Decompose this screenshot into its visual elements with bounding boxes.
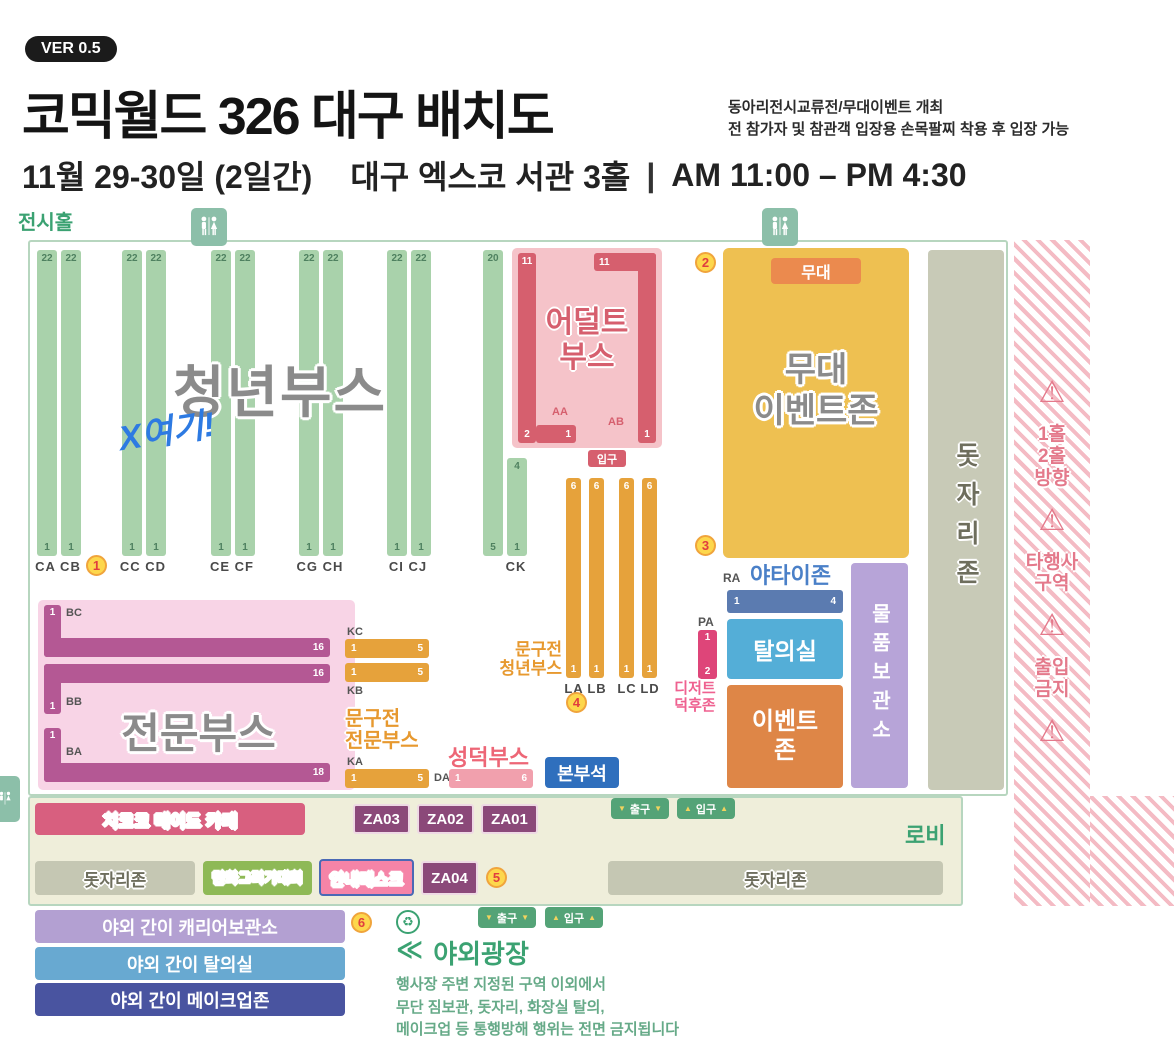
za03-box: ZA03 bbox=[353, 804, 410, 834]
bar-start-count: 1 bbox=[734, 596, 740, 607]
bar-end-count: 6 bbox=[521, 773, 527, 784]
col-label-ld: LD bbox=[636, 681, 664, 696]
yatai-zone-title: 야타이존 bbox=[750, 558, 831, 590]
down-arrow-icon: ▼ bbox=[618, 804, 626, 813]
kb-bar: 15 bbox=[345, 663, 429, 682]
hall-dir-line2: 2홀 bbox=[1035, 446, 1070, 468]
marker-3: 3 bbox=[695, 535, 716, 556]
bar-bottom-count: 5 bbox=[490, 542, 496, 553]
pro-booth-zone: 1 BC 16 16 1 BB 1 BA 18 전문부스 bbox=[38, 600, 355, 790]
col-label-ce-cf: CE CF bbox=[207, 559, 257, 574]
pro-booth-title: 전문부스 bbox=[96, 700, 301, 761]
rule-line1: 행사장 주변 지정된 구역 이외에서 bbox=[396, 974, 679, 997]
adult-booth-title: 어덜트 부스 bbox=[512, 306, 662, 375]
youth-bar-lb: 61 bbox=[589, 478, 604, 678]
bar-top-count: 22 bbox=[391, 253, 402, 264]
up-arrow-icon: ▲ bbox=[720, 804, 728, 813]
youth-bar-ck-long: 205 bbox=[483, 250, 503, 556]
pro-bar-bb-h: 16 bbox=[44, 664, 330, 683]
schedule-line: 11월 29-30일 (2일간) 대구 엑스코 서관 3홀 | AM 11:00… bbox=[22, 152, 967, 198]
marker-6: 6 bbox=[351, 912, 372, 933]
event-zone: 이벤트 존 bbox=[727, 685, 843, 788]
youth-bar-cc: 221 bbox=[122, 250, 142, 556]
adult-row-ab-label: AB bbox=[608, 416, 624, 428]
bar-count: 1 bbox=[50, 701, 56, 712]
stationery-pro-line2: 전문부스 bbox=[345, 730, 419, 752]
bar-top-count: 22 bbox=[239, 253, 250, 264]
info-desk-box: 안내데스크 bbox=[319, 859, 414, 896]
comic-world-layout-poster: VER 0.5 코믹월드 326 대구 배치도 동아리전시교류전/무대이벤트 개… bbox=[0, 0, 1174, 1040]
col-label-cg-ch: CG CH bbox=[295, 559, 345, 574]
version-badge: VER 0.5 bbox=[25, 36, 117, 62]
seongdeok-booth-label: 성덕부스 bbox=[448, 740, 529, 772]
bar-bottom-count: 1 bbox=[330, 542, 336, 553]
stationery-pro-line1: 문구전 bbox=[345, 708, 419, 730]
entrance-button-lobby: ▲입구▲ bbox=[677, 798, 735, 819]
youth-bar-ck-short: 41 bbox=[507, 458, 527, 556]
hall-dir-line3: 방향 bbox=[1035, 468, 1070, 490]
marker-2: 2 bbox=[695, 252, 716, 273]
maid-cafe-box: 치코코 메이드 카페 bbox=[35, 803, 305, 835]
other-event-line2: 구역 bbox=[1026, 573, 1078, 595]
dessert-fan-zone-label: 디저트 덕후존 bbox=[664, 681, 726, 715]
restricted-zone-strip: ⚠ 1홀 2홀 방향 ⚠ 타행사 구역 ⚠ 출입 금지 ⚠ bbox=[1014, 240, 1090, 906]
hall-dir-line1: 1홀 bbox=[1035, 424, 1070, 446]
bar-top-count: 4 bbox=[514, 461, 520, 472]
bar-bottom-count: 1 bbox=[129, 542, 135, 553]
stationery-youth-line1: 문구전 bbox=[498, 640, 562, 659]
bar-bottom-count: 1 bbox=[644, 429, 650, 440]
stationery-pro-label: 문구전 전문부스 bbox=[345, 708, 419, 753]
other-event-line1: 타행사 bbox=[1026, 552, 1078, 574]
bar-top-count: 11 bbox=[522, 256, 533, 267]
bar-top-count: 1 bbox=[705, 632, 711, 643]
pro-bar-ba-h: 18 bbox=[44, 763, 330, 782]
adult-row-aa-label: AA bbox=[552, 406, 568, 418]
bar-bottom-count: 1 bbox=[306, 542, 312, 553]
event-zone-line1: 이벤트 bbox=[752, 708, 818, 736]
outdoor-changing-room-box: 야외 간이 탈의실 bbox=[35, 947, 345, 980]
bar-end-count: 16 bbox=[313, 642, 324, 653]
stage-event-zone: 무대 무대 이벤트존 bbox=[723, 248, 909, 558]
bar-top-count: 22 bbox=[150, 253, 161, 264]
mat-zone-lobby-left: 돗자리존 bbox=[35, 861, 195, 895]
pro-row-bb-label: BB bbox=[66, 696, 82, 708]
event-date: 11월 29-30일 (2일간) bbox=[22, 152, 312, 198]
rule-line3: 메이크업 등 통행방해 행위는 전면 금지됩니다 bbox=[396, 1019, 679, 1040]
storage-zone: 물품보관소 bbox=[851, 563, 908, 788]
bar-bottom-count: 1 bbox=[153, 542, 159, 553]
dessert-line1: 디저트 bbox=[664, 681, 726, 698]
bar-top-count: 6 bbox=[624, 481, 630, 492]
youth-bar-ld: 61 bbox=[642, 478, 657, 678]
ka-label: KA bbox=[347, 756, 363, 768]
down-arrow-icon: ▼ bbox=[654, 804, 662, 813]
bar-start-count: 1 bbox=[351, 667, 357, 678]
page-title: 코믹월드 326 대구 배치도 bbox=[22, 74, 553, 149]
outdoor-rules-text: 행사장 주변 지정된 구역 이외에서 무단 짐보관, 돗자리, 화장실 탈의, … bbox=[396, 974, 679, 1040]
bar-bottom-count: 1 bbox=[647, 664, 653, 675]
bar-bottom-count: 2 bbox=[705, 666, 711, 677]
down-arrow-icon: ▼ bbox=[521, 913, 529, 922]
restroom-figures-icon bbox=[196, 214, 222, 240]
warning-icon-2: ⚠ bbox=[1039, 506, 1066, 536]
da-bar: 16 bbox=[449, 769, 533, 788]
changing-room-zone: 탈의실 bbox=[727, 619, 843, 679]
adult-title-line2: 부스 bbox=[512, 341, 662, 376]
bar-top-count: 6 bbox=[571, 481, 577, 492]
recycle-icon: ♻ bbox=[396, 910, 420, 934]
bar-start-count: 1 bbox=[455, 773, 461, 784]
outdoor-makeup-zone-box: 야외 간이 메이크업존 bbox=[35, 983, 345, 1016]
col-label-ck: CK bbox=[502, 559, 530, 574]
yatai-ra-label: RA bbox=[723, 571, 740, 585]
recycle-glyph: ♻ bbox=[402, 914, 414, 930]
bar-bottom-count: 2 bbox=[524, 429, 530, 440]
yatai-pa-bar: 12 bbox=[698, 630, 717, 679]
pro-row-bc-label: BC bbox=[66, 607, 82, 619]
drawing-contest-box: 만화그리기대회 bbox=[203, 861, 312, 895]
outdoor-plaza-label: 야외광장 bbox=[433, 934, 529, 971]
restroom-figures-icon bbox=[767, 214, 793, 240]
stage-badge: 무대 bbox=[771, 258, 861, 284]
bar-start-count: 11 bbox=[599, 257, 610, 268]
restroom-figures-icon bbox=[0, 788, 14, 810]
event-note-line1: 동아리전시교류전/무대이벤트 개최 bbox=[728, 97, 1069, 119]
bar-end-count: 5 bbox=[417, 667, 423, 678]
outdoor-carrier-storage-box: 야외 간이 캐리어보관소 bbox=[35, 910, 345, 943]
pro-row-ba-label: BA bbox=[66, 746, 82, 758]
bar-top-count: 22 bbox=[126, 253, 137, 264]
exit-label: 출구 bbox=[497, 910, 517, 926]
za04-box: ZA04 bbox=[421, 861, 478, 895]
bar-top-count: 20 bbox=[487, 253, 498, 264]
bar-bottom-count: 1 bbox=[68, 542, 74, 553]
bar-top-count: 22 bbox=[303, 253, 314, 264]
bar-bottom-count: 1 bbox=[394, 542, 400, 553]
stage-title-line2: 이벤트존 bbox=[723, 391, 909, 432]
col-label-ci-cj: CI CJ bbox=[383, 559, 433, 574]
stage-title-line1: 무대 bbox=[723, 350, 909, 391]
youth-bar-lc: 61 bbox=[619, 478, 634, 678]
bar-top-count: 22 bbox=[65, 253, 76, 264]
col-label-cc-cd: CC CD bbox=[118, 559, 168, 574]
event-note-line2: 전 참가자 및 참관객 입장용 손목팔찌 착용 후 입장 가능 bbox=[728, 119, 1069, 141]
dessert-line2: 덕후존 bbox=[664, 698, 726, 715]
bar-end-count: 4 bbox=[830, 596, 836, 607]
outdoor-plaza-title: ≪ 야외광장 bbox=[396, 934, 529, 971]
bar-top-count: 22 bbox=[327, 253, 338, 264]
bar-bottom-count: 1 bbox=[44, 542, 50, 553]
bar-top-count: 6 bbox=[647, 481, 653, 492]
no-entry-line1: 출입 bbox=[1035, 657, 1070, 679]
exhibition-hall-label: 전시홀 bbox=[18, 206, 73, 235]
restricted-text-other-event: 타행사 구역 bbox=[1026, 552, 1078, 596]
restroom-icon-top-right bbox=[762, 208, 798, 246]
youth-bar-la: 61 bbox=[566, 478, 581, 678]
up-arrow-icon: ▲ bbox=[552, 913, 560, 922]
event-notes: 동아리전시교류전/무대이벤트 개최 전 참가자 및 참관객 입장용 손목팔찌 착… bbox=[728, 97, 1069, 141]
bar-bottom-count: 1 bbox=[514, 542, 520, 553]
kc-label: KC bbox=[347, 626, 363, 638]
bar-top-count: 6 bbox=[594, 481, 600, 492]
pro-bar-bc-h: 16 bbox=[44, 638, 330, 657]
exit-button-outdoor: ▼출구▼ bbox=[478, 907, 536, 928]
restricted-zone-corner bbox=[1090, 796, 1174, 906]
mat-zone-right-strip: 돗자리존 bbox=[928, 250, 1004, 790]
marker-5: 5 bbox=[486, 867, 507, 888]
mat-zone-lobby-right: 돗자리존 bbox=[608, 861, 943, 895]
col-label-lb: LB bbox=[583, 681, 611, 696]
event-venue: 대구 엑스코 서관 3홀 bbox=[350, 152, 630, 198]
youth-bar-cb: 221 bbox=[61, 250, 81, 556]
restroom-icon-left-edge bbox=[0, 776, 20, 822]
up-arrow-icon: ▲ bbox=[588, 913, 596, 922]
restroom-icon-top-left bbox=[191, 208, 227, 246]
youth-bar-ca: 221 bbox=[37, 250, 57, 556]
adult-entrance-badge: 입구 bbox=[588, 450, 626, 467]
za02-box: ZA02 bbox=[417, 804, 474, 834]
exit-label: 출구 bbox=[630, 801, 650, 817]
bar-bottom-count: 1 bbox=[571, 664, 577, 675]
za01-box: ZA01 bbox=[481, 804, 538, 834]
restricted-text-no-entry: 출입 금지 bbox=[1035, 657, 1070, 701]
marker-1: 1 bbox=[86, 555, 107, 576]
bar-end-count: 1 bbox=[565, 429, 571, 440]
hq-seat-box: 본부석 bbox=[545, 757, 619, 788]
down-arrow-icon: ▼ bbox=[485, 913, 493, 922]
event-time: AM 11:00 – PM 4:30 bbox=[671, 157, 966, 194]
stationery-youth-label: 문구전 청년부스 bbox=[498, 640, 562, 678]
up-arrow-icon: ▲ bbox=[684, 804, 692, 813]
bar-bottom-count: 1 bbox=[418, 542, 424, 553]
yatai-pa-label: PA bbox=[698, 615, 714, 629]
bar-bottom-count: 1 bbox=[624, 664, 630, 675]
bar-end-count: 18 bbox=[313, 767, 324, 778]
bar-top-count: 22 bbox=[215, 253, 226, 264]
bar-start-count: 1 bbox=[351, 643, 357, 654]
bar-bottom-count: 1 bbox=[594, 664, 600, 675]
entrance-button-outdoor: ▲입구▲ bbox=[545, 907, 603, 928]
pro-bar-bb-v: 1 bbox=[44, 664, 61, 714]
bar-end-count: 5 bbox=[417, 773, 423, 784]
bar-bottom-count: 1 bbox=[218, 542, 224, 553]
bar-top-count: 22 bbox=[415, 253, 426, 264]
warning-icon-3: ⚠ bbox=[1039, 611, 1066, 641]
da-label: DA bbox=[434, 772, 450, 784]
kb-label: KB bbox=[347, 685, 363, 697]
double-angle-icon: ≪ bbox=[396, 934, 423, 971]
entrance-label: 입구 bbox=[696, 801, 716, 817]
stationery-youth-line2: 청년부스 bbox=[498, 659, 562, 678]
schedule-separator: | bbox=[646, 157, 655, 194]
stage-event-title: 무대 이벤트존 bbox=[723, 350, 909, 432]
adult-bar-left-foot: 1 bbox=[536, 425, 576, 443]
bar-top-count: 22 bbox=[41, 253, 52, 264]
storage-zone-label: 물품보관소 bbox=[865, 603, 894, 748]
bar-end-count: 16 bbox=[313, 668, 324, 679]
entrance-label: 입구 bbox=[564, 910, 584, 926]
warning-icon-4: ⚠ bbox=[1039, 717, 1066, 747]
exit-button-lobby: ▼출구▼ bbox=[611, 798, 669, 819]
rule-line2: 무단 짐보관, 돗자리, 화장실 탈의, bbox=[396, 997, 679, 1020]
bar-end-count: 5 bbox=[417, 643, 423, 654]
adult-title-line1: 어덜트 bbox=[512, 306, 662, 341]
warning-icon-1: ⚠ bbox=[1039, 378, 1066, 408]
yatai-ra-bar: 14 bbox=[727, 590, 843, 613]
lobby-label: 로비 bbox=[905, 818, 945, 850]
bar-start-count: 1 bbox=[351, 773, 357, 784]
no-entry-line2: 금지 bbox=[1035, 679, 1070, 701]
marker-4: 4 bbox=[566, 692, 587, 713]
restricted-text-hall-direction: 1홀 2홀 방향 bbox=[1035, 424, 1070, 490]
mat-zone-strip-label: 돗자리존 bbox=[948, 442, 984, 598]
kc-bar: 15 bbox=[345, 639, 429, 658]
adult-booth-zone: 112 1 AA 1110 1 AB 어덜트 부스 bbox=[512, 248, 662, 448]
event-zone-line2: 존 bbox=[774, 737, 796, 765]
ka-bar: 15 bbox=[345, 769, 429, 788]
bar-bottom-count: 1 bbox=[242, 542, 248, 553]
col-label-ca-cb: CA CB bbox=[33, 559, 83, 574]
